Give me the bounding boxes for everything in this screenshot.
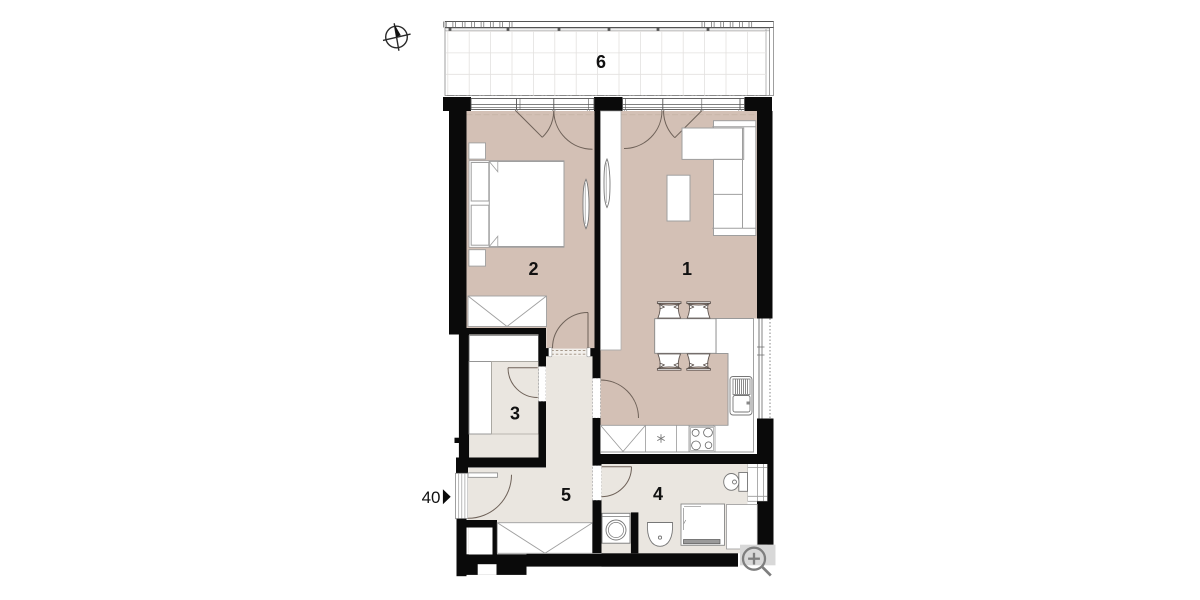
- svg-text:1: 1: [682, 259, 692, 279]
- svg-text:4: 4: [653, 484, 663, 504]
- svg-text:2: 2: [528, 259, 538, 279]
- svg-text:6: 6: [596, 52, 606, 72]
- svg-text:5: 5: [561, 485, 571, 505]
- svg-text:3: 3: [510, 404, 520, 424]
- svg-text:40: 40: [422, 488, 441, 507]
